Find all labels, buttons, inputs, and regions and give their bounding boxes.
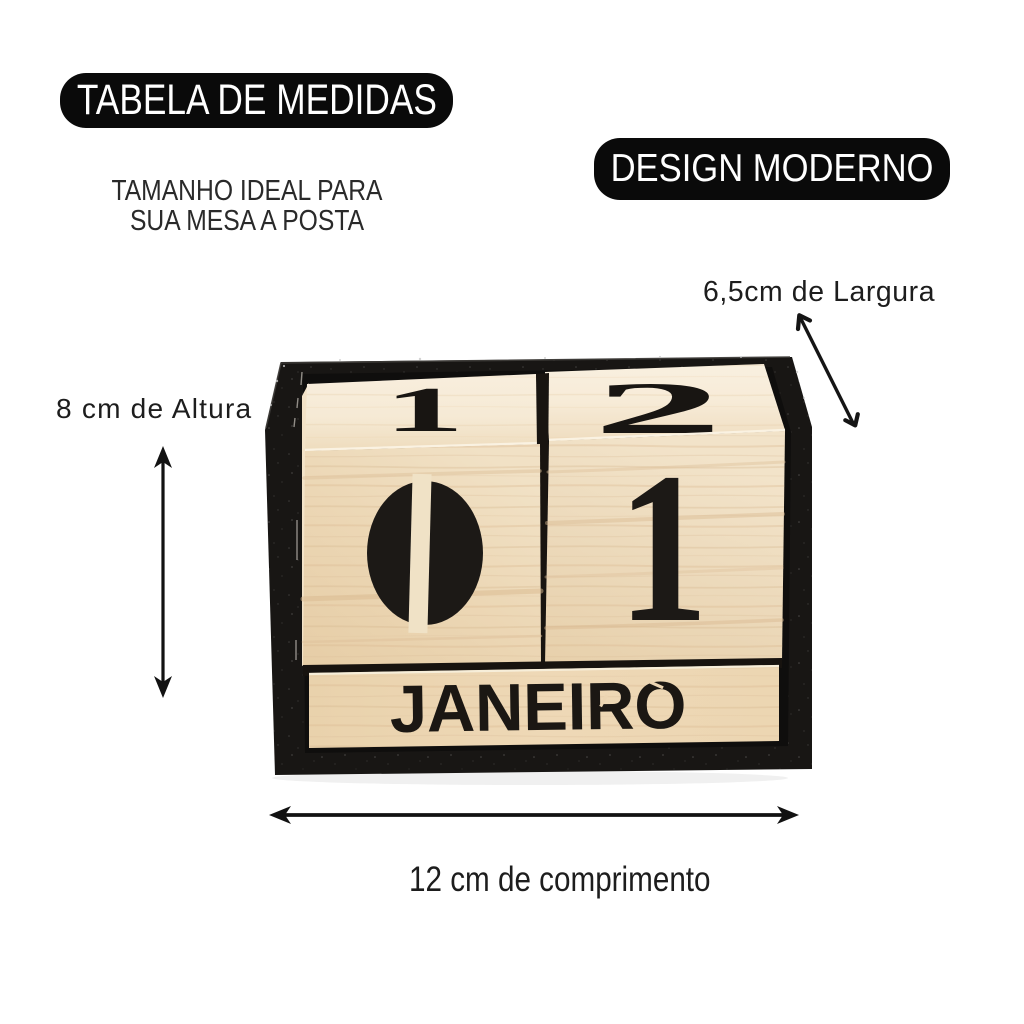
svg-text:1: 1 — [384, 374, 465, 445]
svg-text:JANEIRO: JANEIRO — [389, 668, 686, 747]
svg-text:1: 1 — [618, 430, 709, 668]
